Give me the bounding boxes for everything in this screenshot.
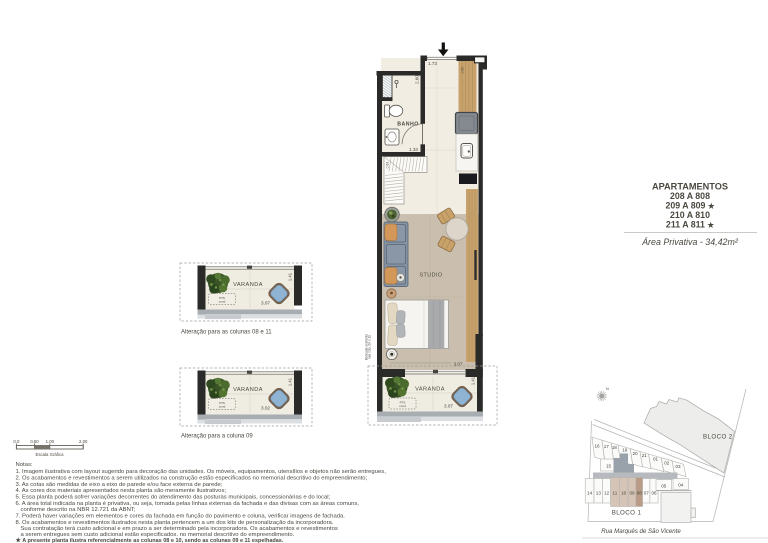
svg-text:1.41: 1.41 <box>288 272 293 281</box>
svg-text:02: 02 <box>664 461 670 466</box>
svg-text:cond: cond <box>219 300 226 304</box>
svg-text:17: 17 <box>604 444 610 449</box>
svg-text:05: 05 <box>661 484 667 489</box>
svg-text:13: 13 <box>596 491 602 496</box>
svg-text:16: 16 <box>594 444 600 449</box>
svg-text:VARANDA: VARANDA <box>233 387 263 393</box>
svg-text:cond: cond <box>219 405 226 409</box>
svg-text:N: N <box>606 387 609 391</box>
svg-text:0.50: 0.50 <box>30 439 39 444</box>
svg-text:1. Imagem ilustrativa com layo: 1. Imagem ilustrativa com layout sugerid… <box>16 469 387 475</box>
svg-text:01: 01 <box>653 457 659 462</box>
svg-text:conforme descrito na NBR 12.72: conforme descrito na NBR 12.721 da ABNT; <box>21 507 136 513</box>
svg-text:Área Privativa - 34,42m²: Área Privativa - 34,42m² <box>641 237 739 247</box>
svg-text:Notas:: Notas: <box>16 462 33 468</box>
svg-text:2.60: 2.60 <box>415 75 420 84</box>
svg-text:5. Essa planta poderá sofrer v: 5. Essa planta poderá sofrer variações d… <box>16 495 331 501</box>
svg-text:4. As cores dos materiais apre: 4. As cores dos materiais apresentados n… <box>16 488 227 494</box>
svg-text:3.02: 3.02 <box>261 406 270 411</box>
svg-text:09: 09 <box>629 491 635 496</box>
svg-text:STUDIO: STUDIO <box>419 273 442 279</box>
svg-text:1.33: 1.33 <box>409 147 418 152</box>
svg-text:1.73: 1.73 <box>428 61 437 66</box>
svg-text:14: 14 <box>587 491 593 496</box>
svg-text:APARTAMENTOS: APARTAMENTOS <box>652 182 728 192</box>
svg-text:0.63: 0.63 <box>386 162 390 169</box>
svg-text:210 A 810: 210 A 810 <box>670 210 710 220</box>
svg-text:18: 18 <box>612 445 618 450</box>
svg-text:VARANDA: VARANDA <box>233 282 263 288</box>
svg-text:3.07: 3.07 <box>444 404 453 409</box>
svg-text:08: 08 <box>637 491 643 496</box>
svg-text:1.41: 1.41 <box>288 377 293 386</box>
svg-text:06: 06 <box>651 491 657 496</box>
svg-text:0.0: 0.0 <box>13 439 20 444</box>
svg-text:cond: cond <box>399 404 406 408</box>
svg-text:3. As cotas são medidas de eix: 3. As cotas são medidas de eixo a eixo d… <box>16 482 223 488</box>
svg-text:1.00: 1.00 <box>46 439 55 444</box>
svg-text:19: 19 <box>622 448 628 453</box>
svg-text:BANHO: BANHO <box>397 122 419 128</box>
svg-text:1.41: 1.41 <box>471 376 476 385</box>
svg-text:Alteração para a coluna 09: Alteração para a coluna 09 <box>181 434 253 440</box>
svg-text:10: 10 <box>621 491 627 496</box>
svg-text:04: 04 <box>678 483 684 488</box>
svg-text:a serem entregues sem custo ad: a serem entregues sem custo adicional es… <box>21 532 295 538</box>
svg-text:nas cols. 09 e 11: nas cols. 09 e 11 <box>367 335 371 359</box>
svg-text:11: 11 <box>613 491 618 496</box>
svg-text:Alteração para as colunas 08 e: Alteração para as colunas 08 e 11 <box>181 330 272 336</box>
svg-text:Rua Marquês de São Vicente: Rua Marquês de São Vicente <box>601 528 681 535</box>
svg-text:03: 03 <box>675 464 681 469</box>
svg-text:12: 12 <box>604 491 610 496</box>
svg-text:07: 07 <box>644 491 650 496</box>
svg-text:211 A 811 ★: 211 A 811 ★ <box>666 220 715 230</box>
svg-text:20: 20 <box>632 451 638 456</box>
svg-text:21: 21 <box>642 453 648 458</box>
svg-text:7. Poderá haver variações em e: 7. Poderá haver variações em elementos e… <box>16 513 346 519</box>
svg-text:0.60: 0.60 <box>461 67 465 74</box>
svg-text:VARANDA: VARANDA <box>415 387 445 393</box>
svg-text:209 A 809 ★: 209 A 809 ★ <box>665 201 715 211</box>
svg-text:2. Os acabamentos e revestimen: 2. Os acabamentos e revestimentos a sere… <box>16 475 368 481</box>
svg-text:15: 15 <box>606 464 612 469</box>
svg-text:3.07: 3.07 <box>261 301 270 306</box>
svg-text:208 A 808: 208 A 808 <box>670 191 710 201</box>
svg-text:BLOCO 1: BLOCO 1 <box>612 510 642 517</box>
svg-text:★ A presente planta ilustra re: ★ A presente planta ilustra referencialm… <box>16 537 284 543</box>
svg-text:2.00: 2.00 <box>79 439 88 444</box>
svg-text:BLOCO 2: BLOCO 2 <box>703 434 733 441</box>
svg-text:Escala Gráfica: Escala Gráfica <box>36 452 65 457</box>
